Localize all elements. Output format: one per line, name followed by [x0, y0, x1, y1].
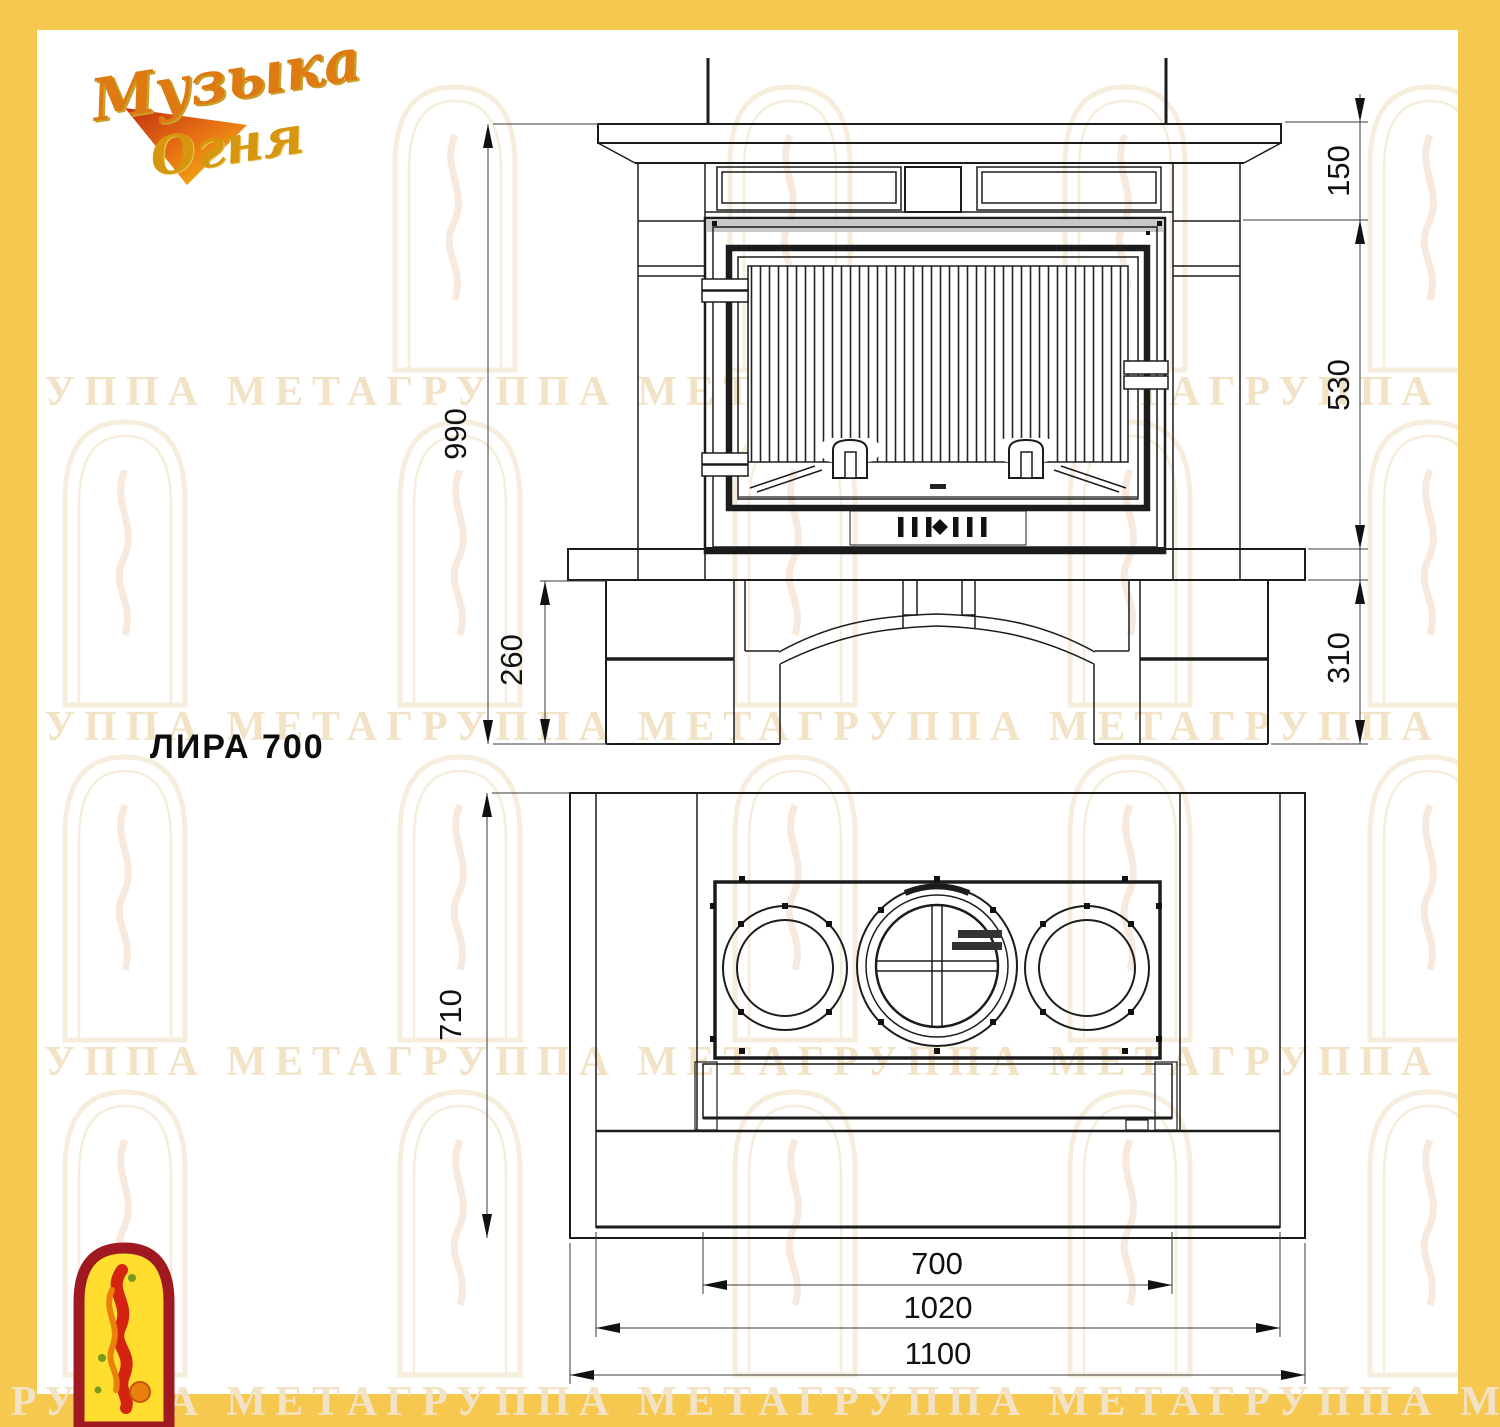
dim-label-710: 710: [433, 989, 468, 1041]
dim-label-310: 310: [1321, 632, 1356, 684]
dim-label-1100: 1100: [905, 1336, 972, 1371]
dim-label-1020: 1020: [904, 1290, 973, 1325]
page: ГРУППА МЕТАГРУППА МЕТАГРУППА МЕТАГРУППА …: [0, 0, 1500, 1427]
frame-top: [0, 0, 1500, 30]
dim-label-530: 530: [1321, 359, 1356, 411]
front-view-drawing: [568, 58, 1305, 744]
brand-emblem: [72, 1240, 176, 1427]
dim-label-150: 150: [1321, 145, 1356, 197]
frame-left: [0, 0, 37, 1427]
frame-right: [1458, 0, 1500, 1427]
plan-view-drawing: [570, 793, 1305, 1238]
page-title: ЛИРА 700: [150, 728, 325, 767]
dim-label-990: 990: [438, 408, 473, 460]
dim-label-260: 260: [494, 634, 529, 686]
dim-label-700: 700: [911, 1246, 963, 1281]
brand-logo: Музыка Огня: [52, 38, 342, 218]
watermark-text: ГРУППА МЕТАГРУППА МЕТАГРУППА МЕТАГРУППА …: [0, 1378, 1500, 1426]
